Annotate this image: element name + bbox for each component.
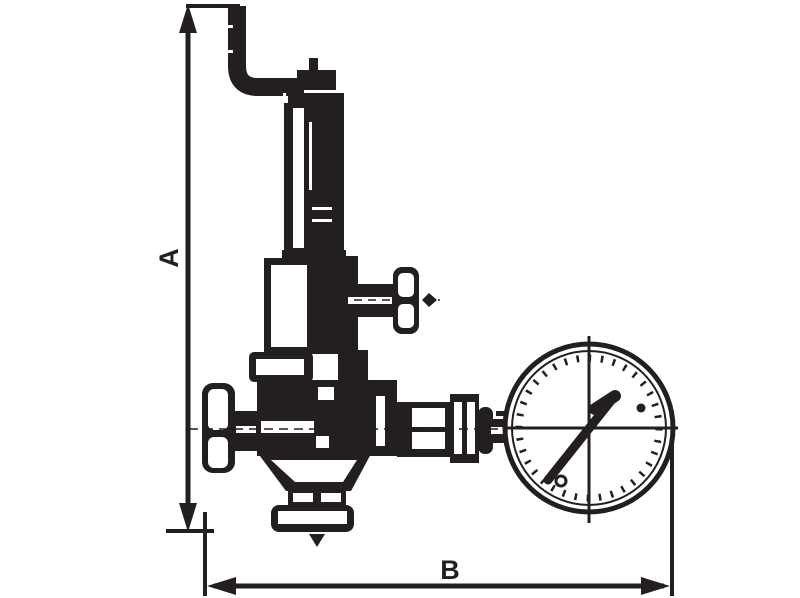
- body-slot: [376, 396, 385, 446]
- pressure-gauge: [496, 336, 678, 523]
- fitting-cap: [478, 407, 493, 454]
- dimension-a-arrow-up-icon: [179, 4, 197, 33]
- pipe-notch: [228, 25, 233, 28]
- gauge-needle-hub: [556, 476, 566, 486]
- dimension-a-arrow-down-icon: [179, 503, 197, 532]
- outlet-neck-slot: [321, 493, 341, 502]
- housing-thread-mark: [312, 207, 332, 210]
- shutoff-handwheel: [202, 383, 259, 473]
- dimension-b-label: B: [440, 555, 460, 585]
- gauge-dial-dot: [637, 404, 646, 413]
- outlet-flange-band: [278, 511, 347, 524]
- valve-technical-drawing: A B: [0, 0, 800, 598]
- dimension-a-label: A: [154, 248, 184, 268]
- body-relief: [318, 387, 334, 400]
- flange-nut-window: [256, 359, 304, 375]
- union-nut-window: [412, 432, 445, 449]
- body-relief: [316, 436, 329, 448]
- t-handle-slot: [398, 273, 414, 297]
- hex-nut-slot: [467, 402, 475, 454]
- inlet-pipe-elbow: [228, 6, 304, 98]
- hex-nut-slot: [454, 402, 462, 454]
- valve-body: [257, 380, 397, 456]
- dimension-b-arrow-right-icon: [641, 577, 670, 595]
- gauge-left-stub: [496, 411, 507, 416]
- flange-nut: [249, 350, 368, 382]
- handwheel-slot: [208, 389, 228, 430]
- housing-hairline: [309, 122, 312, 190]
- housing-thread-mark: [312, 219, 332, 222]
- pipe-notch: [228, 50, 233, 53]
- dimension-b-arrow-left-icon: [207, 577, 236, 595]
- cap-collar: [288, 93, 344, 104]
- union-nut-window: [412, 408, 445, 427]
- pipe-notch: [283, 93, 286, 98]
- t-handle-slot: [398, 304, 414, 328]
- handwheel-slot: [208, 437, 228, 468]
- housing-highlight: [293, 108, 304, 248]
- cap-nut: [297, 70, 336, 90]
- bonnet-window: [271, 265, 307, 347]
- flange-right-block: [338, 350, 368, 382]
- spring-housing: [282, 103, 346, 260]
- bonnet: [264, 256, 358, 354]
- gauge-left-stub: [496, 438, 507, 443]
- bottom-outlet-flange: [257, 452, 372, 547]
- pipe-path: [237, 6, 304, 87]
- drain-tip-icon: [309, 534, 325, 547]
- outlet-neck-slot: [293, 493, 313, 502]
- drawing-canvas: A B: [0, 0, 800, 598]
- body-center-band: [261, 421, 314, 433]
